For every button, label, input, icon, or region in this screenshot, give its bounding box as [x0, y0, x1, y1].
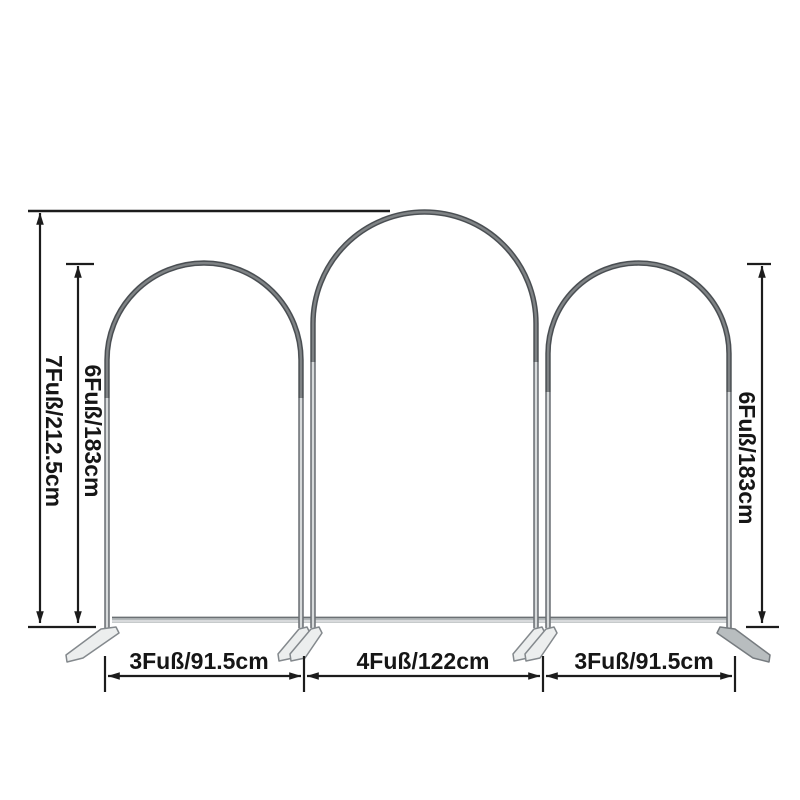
- right-arch-width-label: 3Fuß/91.5cm: [574, 648, 713, 674]
- right-arch-height-label: 6Fuß/183cm: [734, 392, 760, 525]
- middle-arch-width-label: 4Fuß/122cm: [357, 648, 490, 674]
- left-arch-frame: [107, 263, 301, 628]
- total-height-label: 7Fuß/212.5cm: [41, 355, 67, 507]
- right-outer-foot: [717, 627, 770, 662]
- diagram-svg: 7Fuß/212.5cm 6Fuß/183cm 6Fuß/183cm 3Fuß/…: [0, 0, 800, 800]
- product-dimension-diagram: 7Fuß/212.5cm 6Fuß/183cm 6Fuß/183cm 3Fuß/…: [0, 0, 800, 800]
- left-arch-width-label: 3Fuß/91.5cm: [129, 648, 268, 674]
- right-arch-frame: [548, 263, 729, 628]
- bottom-rail: [112, 618, 731, 622]
- middle-arch-frame: [313, 212, 536, 628]
- left-arch-height-label: 6Fuß/183cm: [80, 365, 106, 498]
- left-outer-foot: [66, 627, 119, 662]
